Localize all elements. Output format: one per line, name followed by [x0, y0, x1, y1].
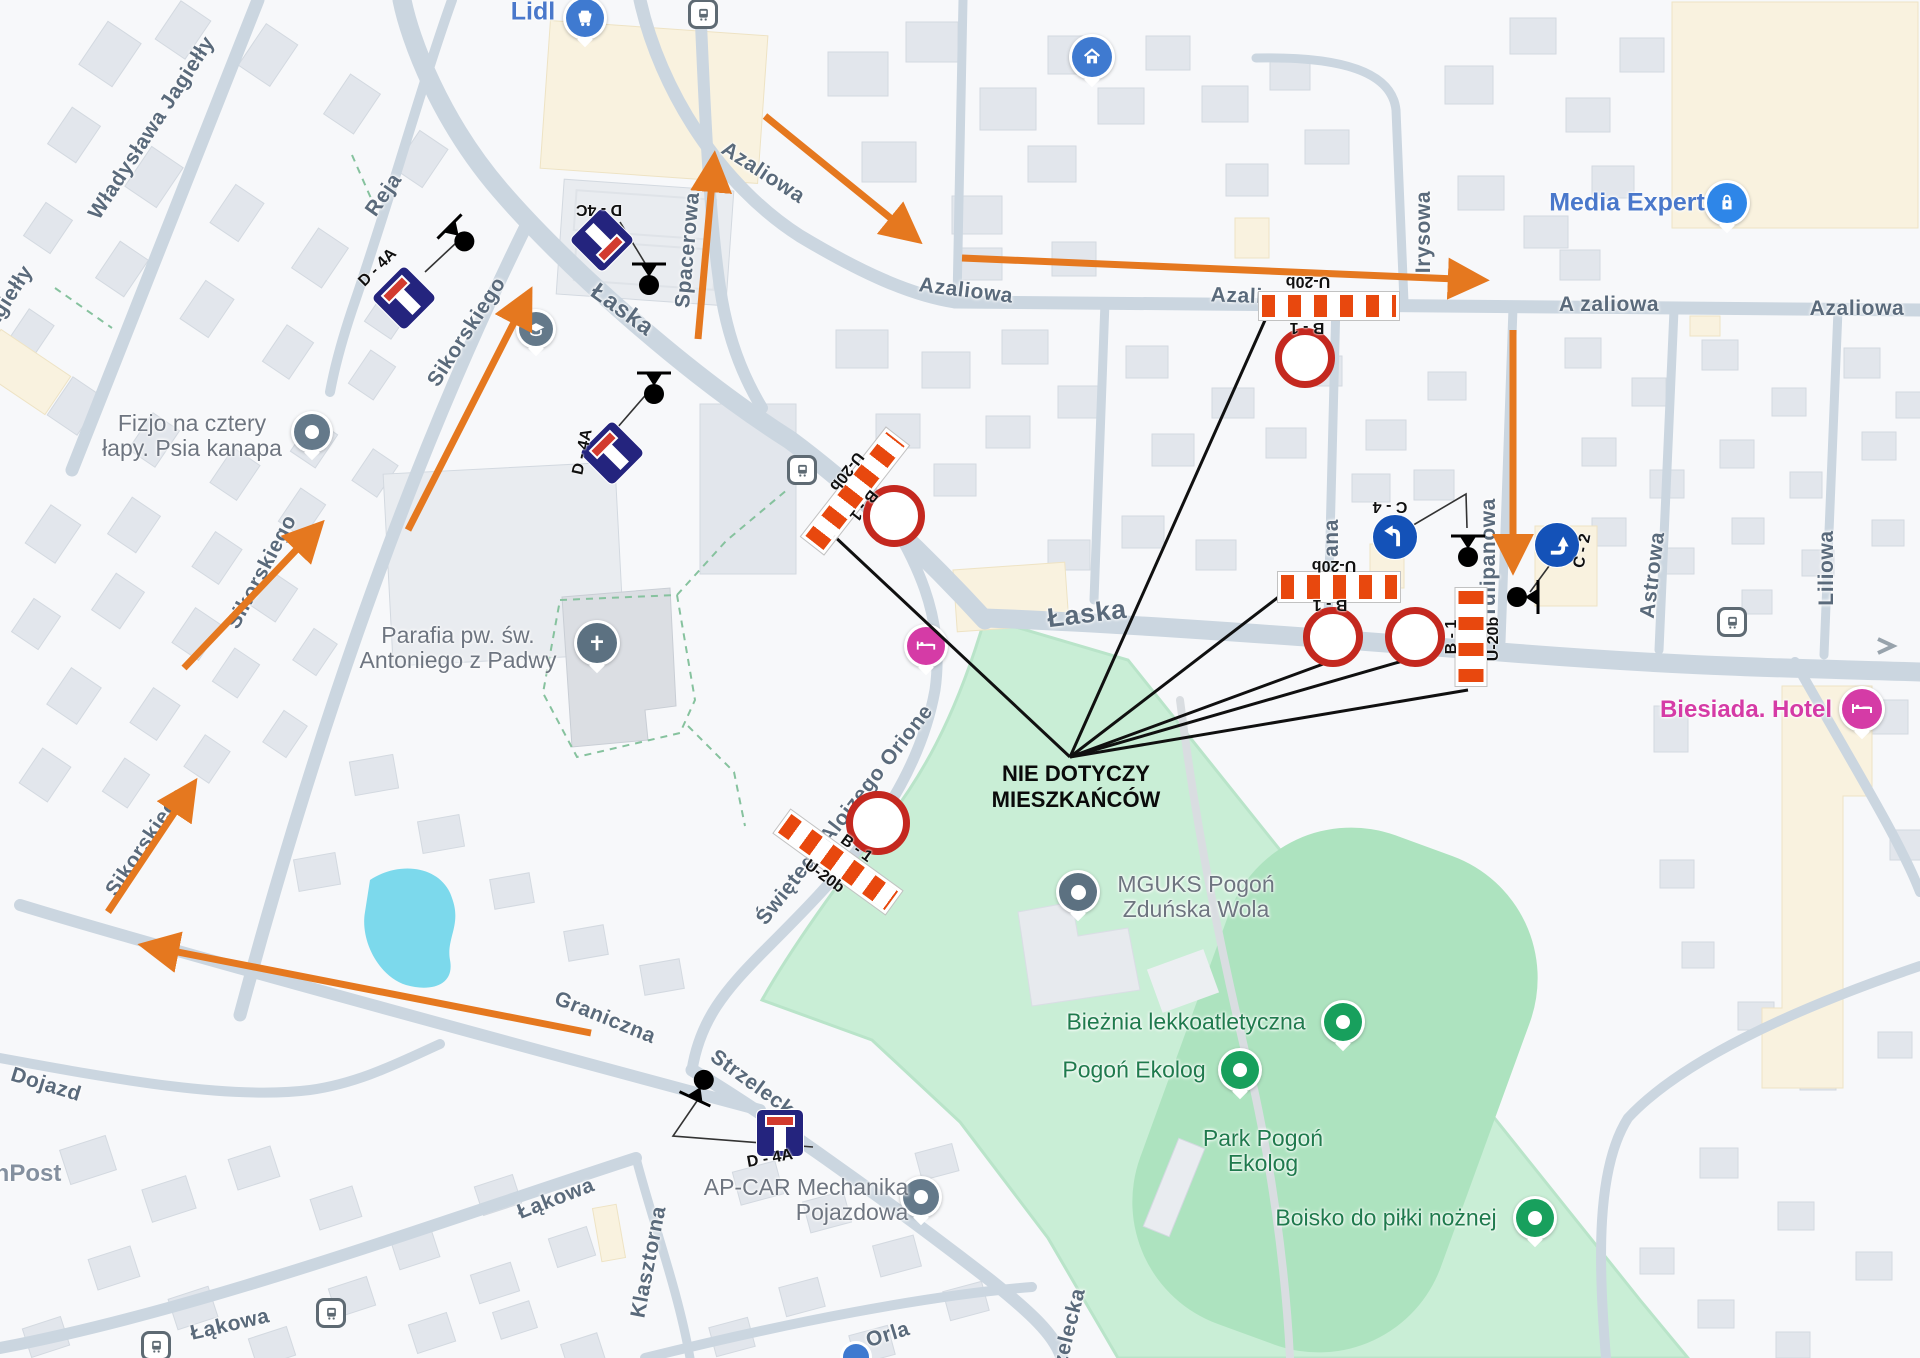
street-graniczna: Graniczna: [551, 987, 659, 1049]
street-azaliowa-e2: Azaliowa: [1810, 297, 1905, 321]
hotel-building: [1762, 686, 1872, 1088]
street-astrowa: Astrowa: [1636, 530, 1670, 619]
poi-label-bieznia[interactable]: Bieżnia lekkoatletyczna: [1066, 1010, 1305, 1035]
poi-label-apcar[interactable]: AP-CAR MechanikaPojazdowa: [704, 1175, 909, 1225]
b1-no-entry-sign: [1275, 328, 1335, 388]
poi-label-park-pogon[interactable]: Park PogońEkolog: [1203, 1126, 1323, 1176]
bus-stop-icon[interactable]: [1717, 607, 1747, 637]
school-icon[interactable]: [516, 309, 556, 349]
street-sikorskiego-n: Sikorskiego: [423, 273, 512, 391]
closure-point-marker: [632, 363, 676, 407]
poi-label-fizjo[interactable]: Fizjo na czteryłapy. Psia kanapa: [102, 411, 282, 461]
street-irysowa: Irysowa: [1412, 191, 1436, 273]
poi-label-lidl[interactable]: Lidl: [511, 0, 555, 26]
street-swietego-alojzego: Świętego Alojzego Orione: [752, 700, 939, 930]
street-orla: Orla: [863, 1317, 912, 1353]
b1-label: B - 1: [1443, 620, 1461, 655]
closure-point-marker: [627, 254, 671, 298]
home-icon[interactable]: [1069, 34, 1115, 80]
street-azaliowa-w: Azaliowa: [918, 273, 1015, 308]
street-liliowa: Liliowa: [1815, 530, 1839, 605]
poi-label-mguks[interactable]: MGUKS PogońZduńska Wola: [1117, 872, 1274, 922]
bieznia-poi-icon[interactable]: [1321, 1000, 1365, 1044]
residents-note: NIE DOTYCZYMIESZKAŃCÓW: [992, 761, 1161, 813]
street-lakowa-s: Łąkowa: [188, 1304, 272, 1346]
lidl-store-icon[interactable]: [563, 0, 607, 40]
closure-point-marker: [1446, 526, 1490, 570]
street-dojazd: Dojazd: [8, 1063, 84, 1107]
pogon-ekolog-poi-icon[interactable]: [1218, 1048, 1262, 1092]
b1-label: B - 1: [1290, 318, 1325, 336]
street-sikorskiego-m: Sikorskiego: [222, 511, 302, 633]
road-direction-chevron: [1878, 639, 1893, 653]
street-azaliowa-e1: A zaliowa: [1559, 293, 1659, 317]
u20b-label: U-20b: [1312, 556, 1356, 574]
poi-label-boisko[interactable]: Boisko do piłki nożnej: [1275, 1206, 1496, 1231]
street-jagielly-corner: Jagiełły: [0, 261, 38, 343]
u20b-barrier: [1259, 292, 1399, 320]
street-azaliowa-nw: Azaliowa: [717, 137, 809, 209]
street-lakowa-n: Łąkowa: [514, 1173, 598, 1224]
poi-label-media-expert[interactable]: Media Expert: [1549, 190, 1705, 217]
poi-dot-icon[interactable]: [843, 1344, 869, 1358]
street-wladyslawa-jagielly: Władysława Jagiełły: [84, 32, 220, 224]
street-laska-c: Łaska: [1046, 594, 1129, 634]
b1-no-entry-sign: [1303, 607, 1363, 667]
biesiada-hotel-icon[interactable]: [1839, 686, 1885, 732]
church-icon[interactable]: [574, 620, 620, 666]
u20b-label: U-20b: [1286, 272, 1330, 290]
street-reja: Reja: [361, 169, 407, 221]
b1-label: B - 1: [1313, 595, 1348, 613]
poi-label-npost[interactable]: nPost: [0, 1161, 61, 1187]
bus-stop-icon[interactable]: [141, 1331, 171, 1358]
pond: [364, 868, 455, 987]
boisko-poi-icon[interactable]: [1513, 1196, 1557, 1240]
poi-label-parafia[interactable]: Parafia pw. św.Antoniego z Padwy: [360, 623, 557, 673]
u20b-label: U-20b: [1485, 617, 1503, 661]
bus-stop-icon[interactable]: [787, 455, 817, 485]
map-canvas[interactable]: Władysława Jagiełły Jagiełły Reja Łaska …: [0, 0, 1920, 1358]
fizjo-poi-icon[interactable]: [291, 411, 333, 453]
b1-no-entry-sign: [1385, 607, 1445, 667]
poi-label-biesiada[interactable]: Biesiada. Hotel: [1660, 697, 1832, 723]
poi-label-pogon-ekolog[interactable]: Pogoń Ekolog: [1062, 1058, 1205, 1083]
street-strzelecka-s: Strzelecka: [1041, 1286, 1091, 1358]
street-ana-partial: ana: [1320, 519, 1344, 557]
d4c-label: D - 4C: [576, 200, 622, 218]
c4-turn-sign: [1373, 515, 1417, 559]
bus-stop-icon[interactable]: [688, 0, 718, 29]
closure-point-marker: [427, 204, 489, 266]
c4-label: C - 4: [1373, 497, 1408, 515]
street-sikorskiego-s: Sikorskiego: [101, 783, 191, 901]
church-building: [562, 588, 676, 747]
media-expert-store-icon[interactable]: [1704, 180, 1750, 226]
hotel-icon[interactable]: [904, 624, 948, 668]
street-spacerowa: Spacerowa: [671, 191, 705, 309]
d4a-label: D - 4A: [746, 1146, 795, 1172]
closure-point-marker: [1504, 575, 1548, 619]
bus-stop-icon[interactable]: [316, 1298, 346, 1328]
street-klasztorna: Klasztorna: [626, 1204, 671, 1320]
mguks-poi-icon[interactable]: [1056, 870, 1100, 914]
